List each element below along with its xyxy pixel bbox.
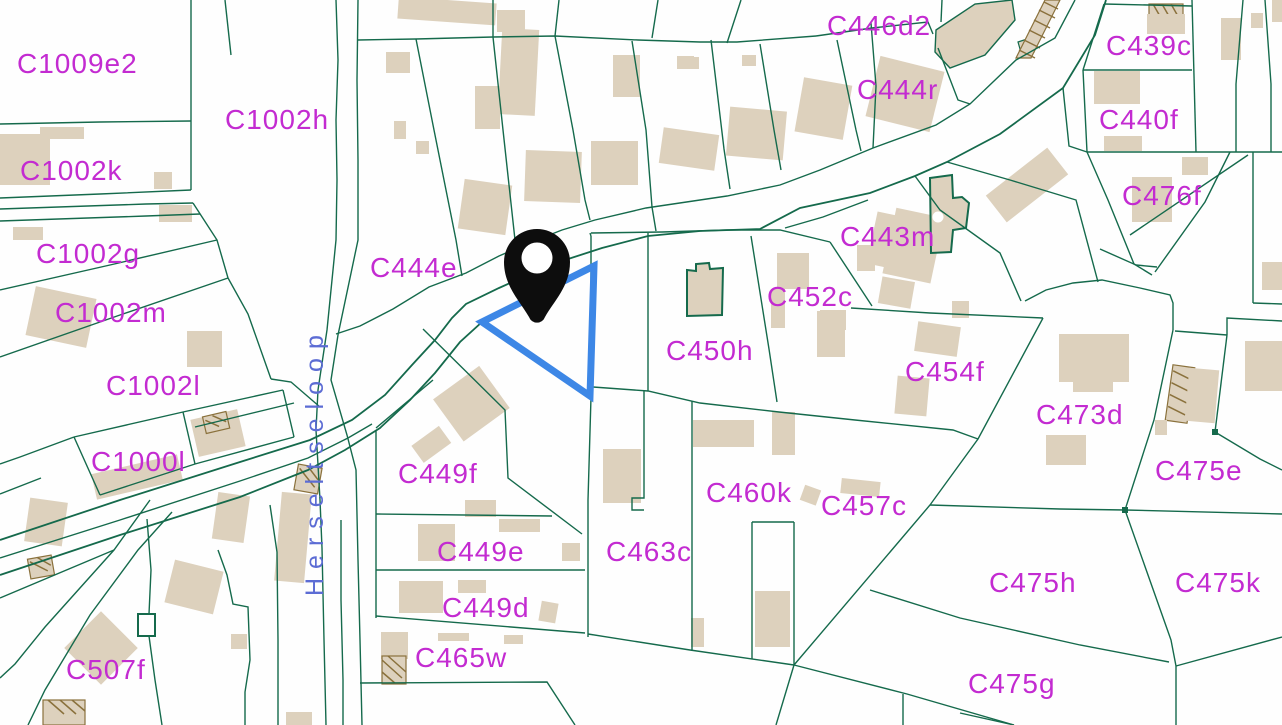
svg-text:C449e: C449e (437, 536, 525, 567)
svg-text:C1009e2: C1009e2 (17, 48, 138, 79)
svg-text:C444r: C444r (857, 74, 938, 105)
svg-text:C473d: C473d (1036, 399, 1124, 430)
svg-text:C463c: C463c (606, 536, 692, 567)
svg-text:C450h: C450h (666, 335, 754, 366)
svg-text:C1002k: C1002k (20, 155, 123, 186)
svg-text:C507f: C507f (66, 654, 146, 685)
svg-text:C475g: C475g (968, 668, 1056, 699)
svg-text:C476f: C476f (1122, 180, 1202, 211)
svg-text:C465w: C465w (415, 642, 507, 673)
svg-text:C454f: C454f (905, 356, 985, 387)
svg-text:C1002h: C1002h (225, 104, 329, 135)
svg-text:C1002g: C1002g (36, 238, 140, 269)
svg-text:C475h: C475h (989, 567, 1077, 598)
svg-text:C1002l: C1002l (106, 370, 201, 401)
svg-text:Herseltseloop: Herseltseloop (301, 326, 329, 596)
svg-text:C444e: C444e (370, 252, 458, 283)
svg-text:C443m: C443m (840, 221, 935, 252)
svg-text:C439c: C439c (1106, 30, 1192, 61)
svg-text:C475k: C475k (1175, 567, 1261, 598)
svg-text:C452c: C452c (767, 281, 853, 312)
svg-text:C449f: C449f (398, 458, 478, 489)
svg-text:C460k: C460k (706, 477, 792, 508)
svg-text:C457c: C457c (821, 490, 907, 521)
svg-text:C440f: C440f (1099, 104, 1179, 135)
svg-text:C446d2: C446d2 (827, 10, 931, 41)
svg-text:C475e: C475e (1155, 455, 1243, 486)
svg-text:C1000l: C1000l (91, 446, 186, 477)
svg-text:C1002m: C1002m (55, 297, 167, 328)
svg-text:C449d: C449d (442, 592, 530, 623)
